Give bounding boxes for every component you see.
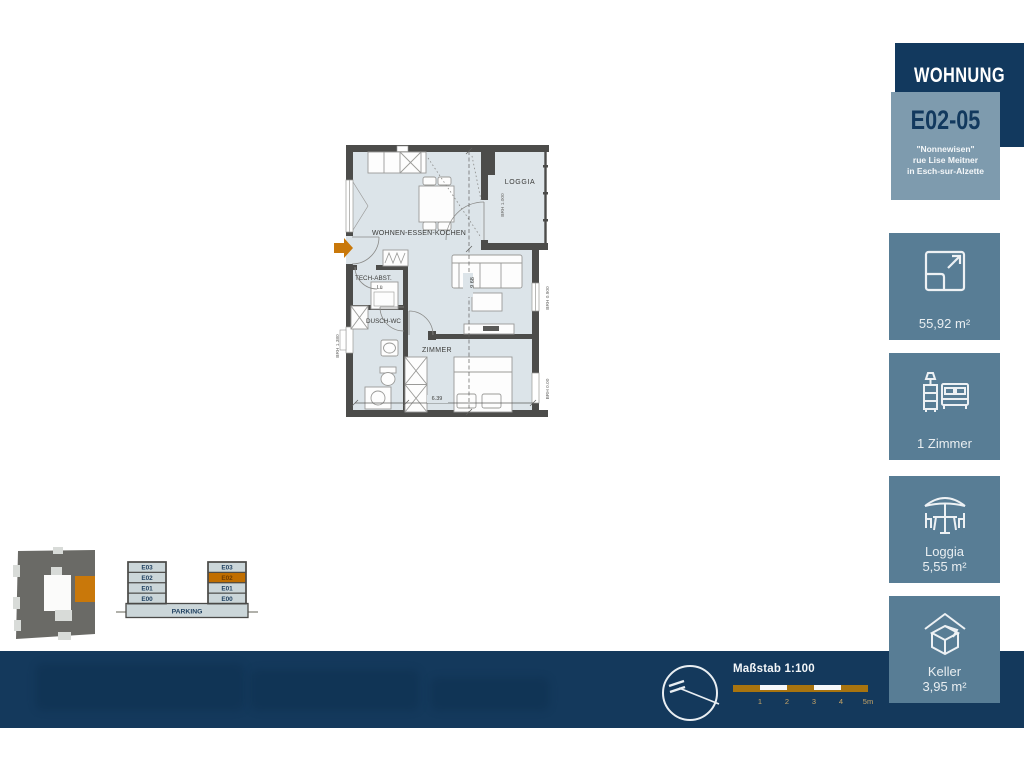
floor-label: E02 [141, 575, 153, 582]
keller-label: Keller [922, 665, 966, 680]
dimension-height: 9.68 [470, 277, 476, 288]
site-plan [8, 546, 103, 646]
section-diagram: E03 E02 E01 E00 E03 E02 E01 E00 PARKING [112, 555, 262, 625]
vent-label: Lü [377, 285, 383, 291]
courtyard [44, 575, 71, 611]
scale-tick: 5m [857, 697, 879, 706]
area-value: 55,92 m² [919, 317, 970, 332]
parking-label: PARKING [172, 609, 203, 616]
address-line: rue Lise Meitner [891, 155, 1000, 166]
scale-label: Maßstab 1:100 [733, 663, 815, 675]
room-label-tech: TECH-ABST. [355, 275, 392, 282]
scale-tick: 3 [803, 697, 825, 706]
floor-label: E03 [141, 565, 153, 572]
info-card-keller: Keller 3,95 m² [889, 596, 1000, 703]
info-card-loggia: Loggia 5,55 m² [889, 476, 1000, 583]
floor-label: E00 [141, 596, 153, 603]
footer-band [0, 651, 1024, 728]
address: "Nonnewisen" rue Lise Meitner in Esch-su… [891, 144, 1000, 177]
scale-tick: 4 [830, 697, 852, 706]
scale-tick: 1 [749, 697, 771, 706]
loggia-label: Loggia [922, 545, 966, 560]
footer-watermark [250, 669, 420, 711]
address-line: "Nonnewisen" [891, 144, 1000, 155]
loggia-labels: Loggia 5,55 m² [922, 545, 966, 574]
loggia-parasol-icon [917, 486, 973, 538]
floor-label: E00 [221, 596, 233, 603]
keller-labels: Keller 3,95 m² [922, 665, 966, 694]
room-label-bedroom: ZIMMER [422, 347, 452, 354]
keller-area: 3,95 m² [922, 680, 966, 695]
room-label-loggia: LOGGIA [505, 179, 535, 186]
unit-number: E02-05 [902, 105, 989, 136]
brh-left: BRH 1.380 [335, 334, 341, 358]
bedroom-icon [917, 363, 973, 419]
page-title: WOHNUNG [909, 64, 1010, 88]
highlighted-unit [75, 576, 95, 602]
loggia-area: 5,55 m² [922, 560, 966, 575]
area-expand-icon [917, 243, 973, 299]
compass-north-icon [653, 656, 727, 730]
room-label-living: WOHNEN-ESSEN-KOCHEN [372, 230, 466, 237]
info-card-rooms: 1 Zimmer [889, 353, 1000, 460]
keller-box-icon [917, 606, 973, 660]
address-line: in Esch-sur-Alzette [891, 166, 1000, 177]
footer-watermark [35, 663, 245, 711]
floor-plan: WOHNEN-ESSEN-KOCHEN LOGGIA TECH-ABST. DU… [330, 140, 558, 425]
brh-right-upper: BRH 0.900 [545, 286, 551, 310]
scale-tick: 2 [776, 697, 798, 706]
floor-label: E01 [141, 585, 153, 592]
floor-label: E01 [221, 585, 233, 592]
floor-label-highlighted: E02 [221, 575, 233, 582]
dimension-width: 6.39 [432, 396, 443, 402]
brochure-page: Maßstab 1:100 1 2 3 4 5m [0, 0, 1024, 768]
footer-watermark [430, 677, 550, 711]
brh-loggia: BRH 1.000 [500, 193, 506, 217]
unit-box: E02-05 "Nonnewisen" rue Lise Meitner in … [891, 92, 1000, 200]
room-label-bath: DUSCH-WC [366, 318, 401, 325]
floor-label: E03 [221, 565, 233, 572]
brh-right-lower: BRH 0.00 [545, 378, 551, 399]
scale-baseline [733, 690, 868, 692]
info-card-area: 55,92 m² [889, 233, 1000, 340]
rooms-value: 1 Zimmer [917, 437, 972, 452]
